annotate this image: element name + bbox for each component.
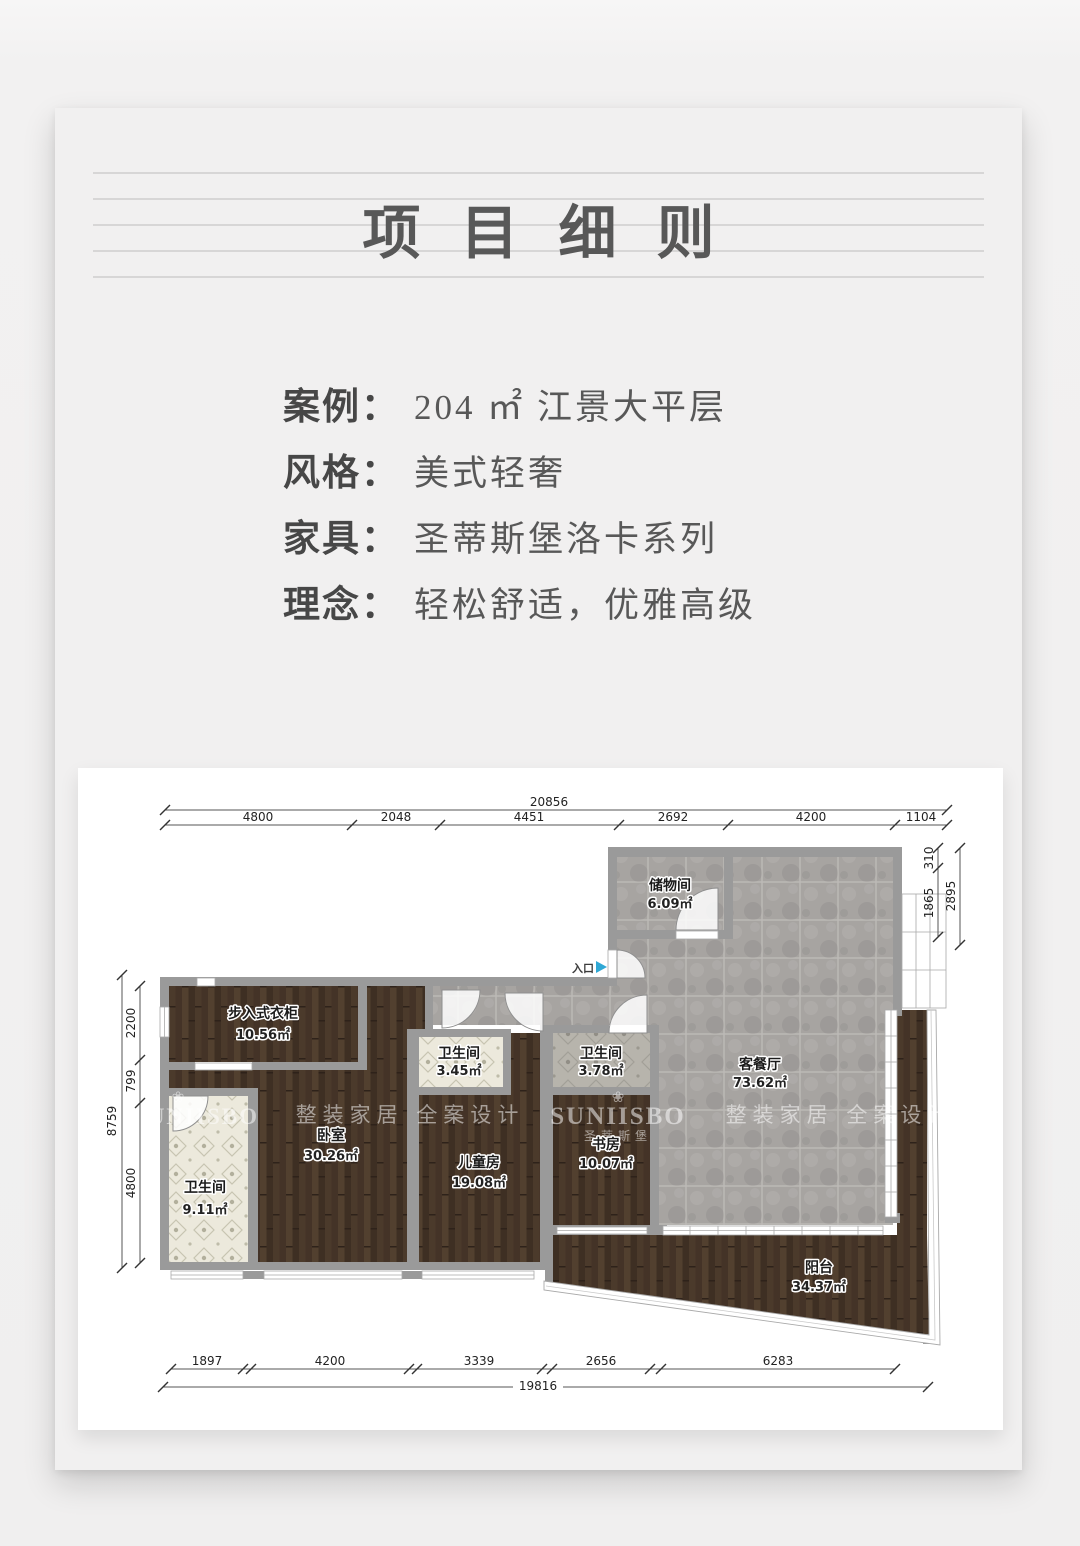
dim-top-4: 2692 [658,810,689,824]
dim-left-1: 2200 [124,1008,138,1039]
room-name-bath-guest: 卫生间 [580,1045,622,1062]
dim-bottom-3: 3339 [464,1354,495,1368]
info-label: 家具： [283,519,400,560]
room-area-bedroom: 30.26㎡ [304,1148,358,1164]
dim-top-5: 4200 [796,810,827,824]
info-label: 案例： [283,387,400,428]
dim-top-6: 1104 [906,810,937,824]
entry-label: 入口 [572,962,594,975]
room-name-bedroom: 卧室 [317,1127,345,1144]
info-row-concept: 理念：轻松舒适，优雅高级 [283,574,756,628]
room-name-kids: 儿童房 [457,1154,500,1171]
content-card: 项目细则 案例：204 ㎡ 江景大平层 风格：美式轻奢 家具：圣蒂斯堡洛卡系列 … [55,108,1022,1470]
info-value: 圣蒂斯堡洛卡系列 [414,520,718,559]
floorplan-panel: ❀ SUNIISBO 整装家居 全案设计 ❀ SUNIISBO 圣蒂斯堡 整装家… [78,768,1003,1430]
dim-bottom-total: 19816 [519,1379,557,1393]
dim-bottom-2: 4200 [315,1354,346,1368]
entry-arrow-icon [596,961,607,973]
info-value: 轻松舒适，优雅高级 [414,586,756,625]
room-name-bath-small: 卫生间 [438,1045,480,1062]
page: 项目细则 案例：204 ㎡ 江景大平层 风格：美式轻奢 家具：圣蒂斯堡洛卡系列 … [0,0,1080,1546]
info-value: 美式轻奢 [414,454,566,493]
room-area-closet: 10.56㎡ [236,1027,290,1043]
dim-right-2: 1865 [922,888,936,919]
room-area-bath-master: 9.11㎡ [182,1202,227,1218]
info-row-case: 案例：204 ㎡ 江景大平层 [283,376,727,430]
rule-line [93,172,984,174]
floorplan-image: ❀ SUNIISBO 整装家居 全案设计 ❀ SUNIISBO 圣蒂斯堡 整装家… [78,768,1003,1430]
dim-bottom-4: 2656 [586,1354,617,1368]
dim-bottom-1: 1897 [192,1354,223,1368]
room-area-bath-small: 3.45㎡ [436,1063,481,1079]
room-area-kids: 19.08㎡ [452,1175,506,1191]
dim-right-total: 2895 [944,881,958,912]
watermark-text-left: 整装家居 全案设计 [296,1103,525,1127]
watermark-brand-center: SUNIISBO [550,1103,686,1130]
entry-marker: 入口 [572,961,607,975]
room-area-storage: 6.09㎡ [647,896,692,912]
dim-top-2: 2048 [381,810,412,824]
room-name-storage: 储物间 [648,877,691,894]
room-name-closet: 步入式衣柜 [228,1005,298,1022]
room-name-bath-master: 卫生间 [184,1179,226,1196]
dim-bottom-5: 6283 [763,1354,794,1368]
dim-left-3: 4800 [124,1168,138,1199]
info-label: 理念： [283,585,400,626]
watermark-text-right: 整装家居 全案设计 [726,1103,955,1127]
dim-left-2: 799 [124,1070,138,1093]
room-name-living: 客餐厅 [738,1056,781,1073]
room-area-living: 73.62㎡ [733,1075,787,1091]
room-name-balcony: 阳台 [805,1259,833,1276]
info-label: 风格： [283,453,400,494]
page-title: 项目细则 [55,186,1022,270]
dim-top-1: 4800 [243,810,274,824]
room-area-bath-guest: 3.78㎡ [578,1063,623,1079]
dim-top-total: 20856 [530,795,568,809]
watermark-brand-left: SUNIISBO [133,1104,259,1129]
dim-right-1: 310 [922,847,936,870]
rule-line [93,276,984,278]
info-row-style: 风格：美式轻奢 [283,442,566,496]
room-area-study: 10.07㎡ [579,1156,633,1172]
info-value: 204 ㎡ 江景大平层 [414,388,727,427]
svg-text:8759: 8759 [105,1106,119,1137]
room-area-balcony: 34.37㎡ [792,1279,846,1295]
dim-top-3: 4451 [514,810,545,824]
info-row-furniture: 家具：圣蒂斯堡洛卡系列 [283,508,718,562]
room-name-study: 书房 [592,1136,620,1153]
